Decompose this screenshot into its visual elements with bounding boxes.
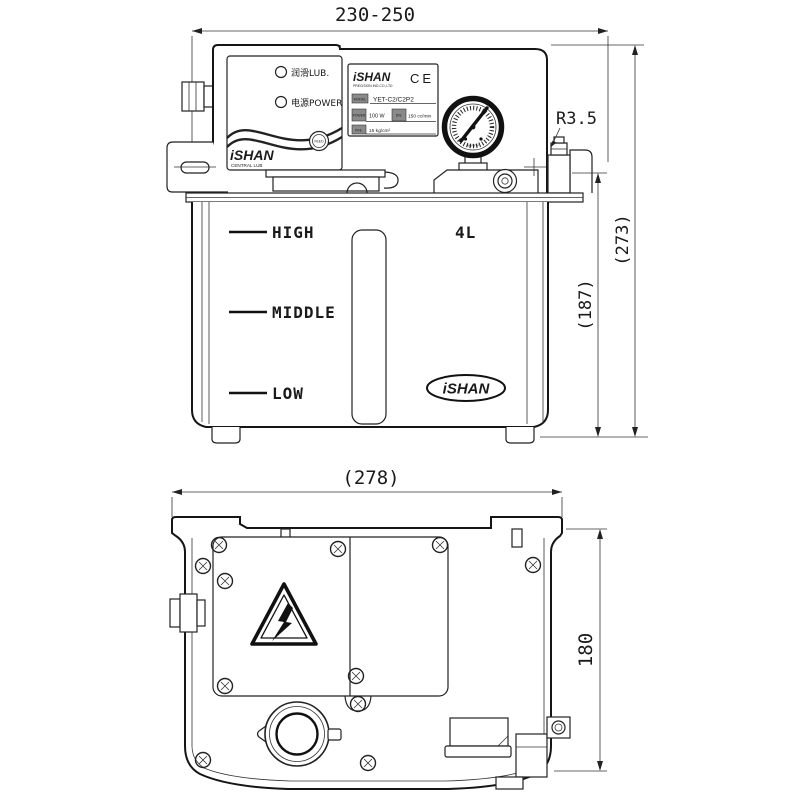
drawing-sheet: 230-250 润滑LUB. [0,0,800,800]
oil-level-sight-window [352,230,386,424]
gauge-unit-label: kg/cm² [467,143,480,148]
dim-width-rear: (278) [172,467,562,517]
cable-gland-front [182,82,214,111]
pressure-value: 15 kg/cm² [369,128,390,134]
feed-button-label: FEED [314,140,324,144]
arrowhead-right-icon [552,489,562,495]
terminal-cover-plate [213,537,448,711]
arrowhead-left-icon [172,489,182,495]
mounting-bracket-right [570,150,592,193]
level-middle-label: MIDDLE [272,303,336,322]
cable-gland-rear [170,594,205,632]
pump-tray [266,170,398,193]
level-high-label: HIGH [272,223,315,242]
model-value: YET-C2/C2P2 [373,97,414,104]
dim-height-rear-label: 180 [575,633,597,667]
discharge-label: DIS. [396,114,403,118]
arrowhead-left-icon [192,28,202,34]
arrowhead-up-icon [597,529,603,539]
nameplate-brand-sub: PRECISION IND.CO.,LTD [353,84,393,88]
front-view: 230-250 润滑LUB. [167,4,648,443]
nameplate: iSHAN PRECISION IND.CO.,LTD CE MODEL YET… [348,64,438,136]
port-tab-right [328,729,341,740]
rear-view: (278) [170,467,607,789]
dim-height-total-label: (273) [613,214,633,265]
radius-callout-label: R3.5 [556,109,597,129]
ce-mark: CE [410,71,434,86]
outlet-boss [494,170,517,193]
arrowhead-right-icon [598,28,608,34]
panel-brand-sub: CENTRAL LUB [231,163,262,168]
dim-width-front-label: 230-250 [335,4,415,26]
arrowhead-down-icon [597,761,603,771]
pressure-label: PRE. [355,129,363,133]
bracket-slot-left [181,162,209,173]
lubrication-pump-technical-drawing: 230-250 润滑LUB. [0,0,800,800]
arrowhead-down-icon [595,427,601,437]
oil-tank: HIGH MIDDLE LOW 4L iSHAN [192,202,548,443]
level-low-label: LOW [272,384,304,403]
tank-capacity-label: 4L [455,223,476,242]
panel-brand-logo: iSHAN [230,147,274,163]
arrowhead-up-icon [595,173,601,183]
tank-flange [186,193,583,202]
arrowhead-down-icon [632,427,638,437]
dim-height-tank-label: (187) [576,279,596,330]
arrowhead-up-icon [632,45,638,55]
tank-foot-left [212,427,240,443]
tank-brand-logo: iSHAN [443,381,491,398]
outlet-fitting-assembly [548,137,592,193]
tank-foot-right [506,427,534,443]
power-value: 100 W [369,114,385,120]
nameplate-brand: iSHAN [353,70,391,84]
power-label: POWER [353,114,366,118]
dim-width-rear-label: (278) [342,467,399,489]
model-label: MODEL [354,98,367,102]
discharge-value: 150 cc/min [408,114,432,120]
dim-height-total: (273) [551,45,644,437]
hanging-tab-right [512,529,522,547]
control-panel: 润滑LUB. 电源POWER FEED iSHAN CENTRAL LUB [227,56,342,170]
indicator-power-label: 电源POWER [291,97,342,109]
dim-height-tank: (187) [540,173,648,437]
indicator-lub-label: 润滑LUB. [291,67,329,79]
